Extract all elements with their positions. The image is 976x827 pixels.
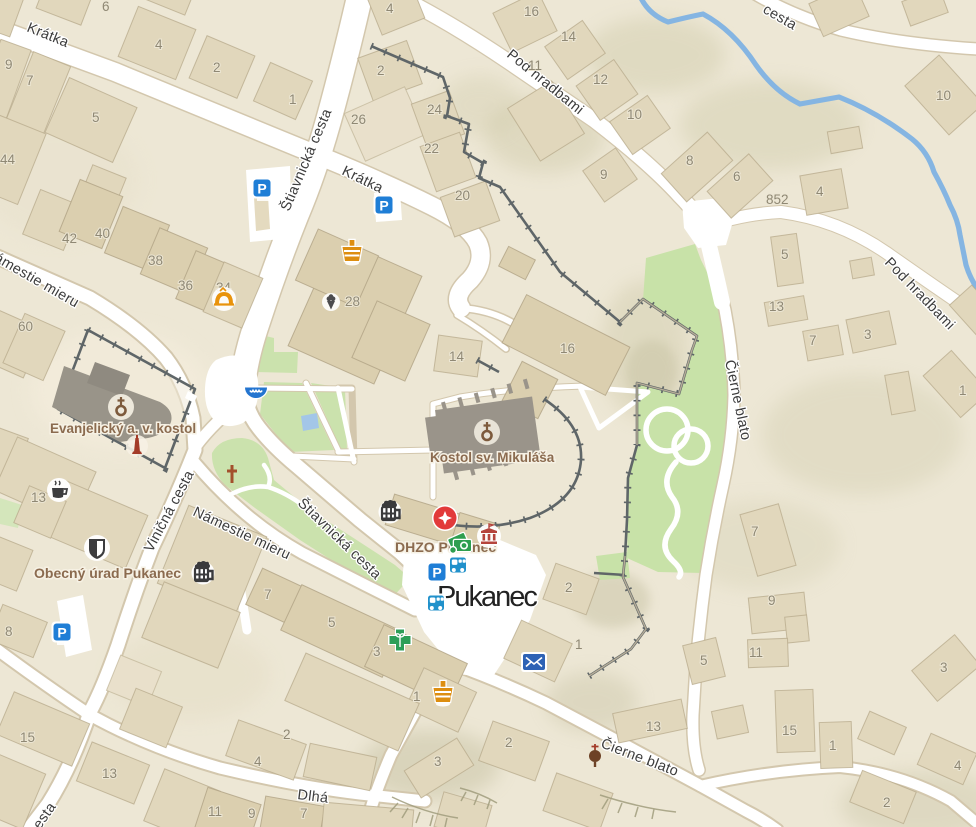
svg-text:11: 11 [528, 58, 542, 73]
svg-text:1: 1 [413, 689, 421, 704]
svg-text:1: 1 [959, 383, 967, 398]
svg-text:Evanjelický a. v. kostol: Evanjelický a. v. kostol [50, 421, 196, 436]
svg-text:4: 4 [386, 1, 394, 16]
svg-text:9: 9 [5, 57, 13, 72]
svg-text:15: 15 [782, 723, 797, 738]
svg-text:10: 10 [627, 107, 642, 122]
svg-text:2: 2 [565, 580, 573, 595]
svg-text:5: 5 [700, 653, 708, 668]
svg-text:7: 7 [264, 587, 272, 602]
svg-text:8: 8 [5, 624, 13, 639]
svg-text:44: 44 [0, 152, 16, 167]
svg-text:42: 42 [62, 231, 77, 246]
svg-text:13: 13 [646, 719, 661, 734]
svg-text:7: 7 [300, 806, 308, 821]
svg-text:7: 7 [26, 73, 34, 88]
svg-text:20: 20 [455, 188, 470, 203]
svg-text:11: 11 [208, 804, 222, 819]
svg-text:14: 14 [449, 349, 465, 364]
svg-text:4: 4 [155, 37, 163, 52]
svg-text:5: 5 [92, 110, 100, 125]
svg-text:13: 13 [102, 766, 117, 781]
svg-text:13: 13 [769, 299, 784, 314]
svg-text:1: 1 [289, 92, 297, 107]
svg-text:16: 16 [560, 341, 575, 356]
svg-text:60: 60 [18, 319, 33, 334]
svg-text:6: 6 [733, 169, 741, 184]
svg-text:1: 1 [575, 637, 583, 652]
svg-text:4: 4 [254, 754, 262, 769]
svg-text:2: 2 [883, 795, 891, 810]
svg-text:1: 1 [829, 738, 837, 753]
svg-text:8: 8 [686, 153, 694, 168]
svg-text:Obecný úrad Pukanec: Obecný úrad Pukanec [34, 565, 181, 581]
svg-text:12: 12 [593, 72, 608, 87]
svg-text:40: 40 [95, 226, 110, 241]
svg-text:2: 2 [377, 63, 385, 78]
svg-text:2: 2 [505, 735, 513, 750]
svg-text:2: 2 [213, 60, 221, 75]
svg-text:P: P [379, 197, 388, 213]
svg-text:3: 3 [434, 754, 442, 769]
svg-text:4: 4 [816, 184, 824, 199]
svg-text:7: 7 [751, 524, 759, 539]
svg-text:9: 9 [768, 593, 776, 608]
svg-text:4: 4 [954, 758, 962, 773]
svg-text:P: P [257, 180, 266, 196]
svg-text:3: 3 [864, 327, 872, 342]
svg-text:28: 28 [345, 294, 360, 309]
svg-text:P: P [57, 624, 66, 640]
svg-text:26: 26 [351, 112, 366, 127]
svg-text:15: 15 [20, 730, 35, 745]
svg-text:2: 2 [283, 727, 291, 742]
svg-text:38: 38 [148, 253, 163, 268]
svg-text:14: 14 [561, 29, 577, 44]
svg-text:5: 5 [781, 247, 789, 262]
svg-text:7: 7 [809, 333, 817, 348]
svg-text:36: 36 [178, 278, 193, 293]
svg-text:852: 852 [766, 192, 789, 207]
svg-text:Kostol sv. Mikuláša: Kostol sv. Mikuláša [430, 450, 555, 465]
svg-text:9: 9 [600, 167, 608, 182]
svg-text:13: 13 [31, 490, 46, 505]
svg-text:P: P [432, 564, 441, 580]
svg-text:22: 22 [424, 141, 439, 156]
svg-text:3: 3 [940, 660, 948, 675]
svg-text:Pukanec: Pukanec [437, 581, 537, 613]
svg-text:6: 6 [102, 0, 110, 14]
svg-text:3: 3 [373, 644, 381, 659]
svg-text:9: 9 [248, 806, 256, 821]
svg-text:24: 24 [427, 102, 443, 117]
svg-text:5: 5 [328, 615, 336, 630]
svg-text:11: 11 [749, 645, 763, 660]
svg-text:16: 16 [524, 4, 539, 19]
svg-text:10: 10 [936, 88, 951, 103]
